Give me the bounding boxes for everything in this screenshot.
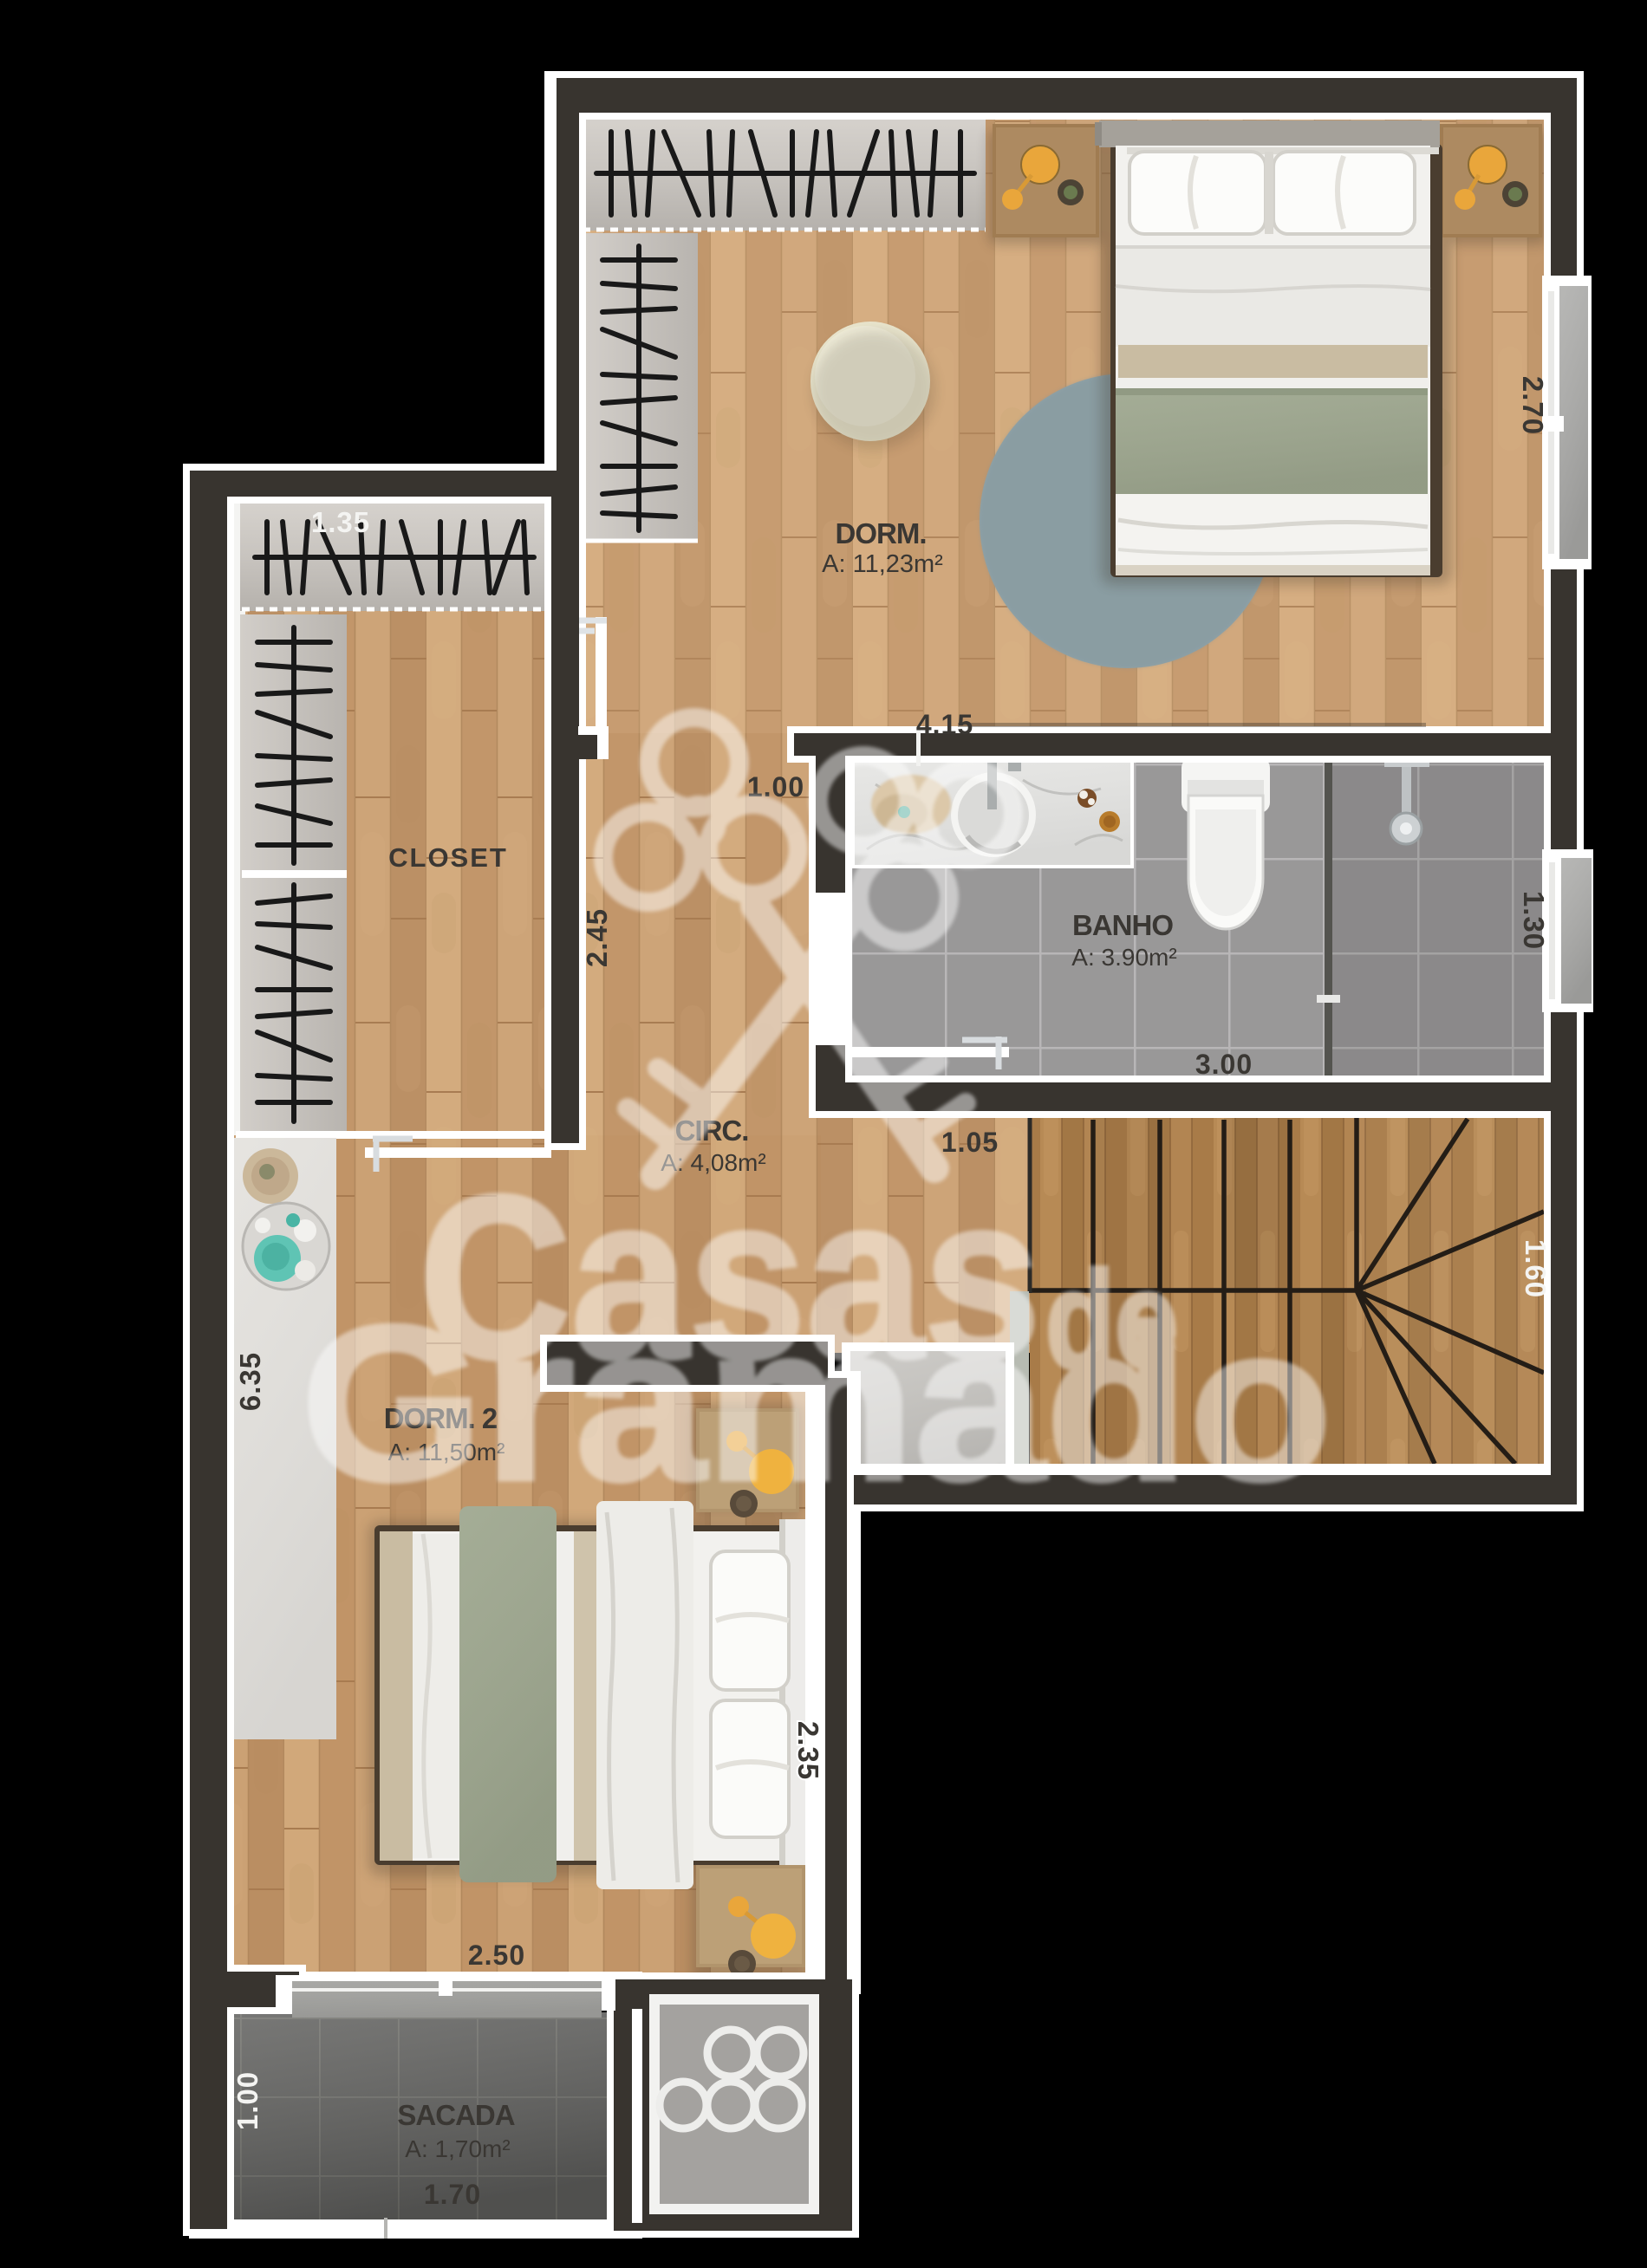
svg-text:6.35: 6.35 (234, 1352, 266, 1411)
svg-text:CLOSET: CLOSET (388, 842, 508, 873)
svg-text:1.60: 1.60 (1520, 1239, 1552, 1298)
svg-text:1.00: 1.00 (231, 2071, 264, 2130)
svg-text:Gramado: Gramado (301, 1280, 1332, 1527)
svg-text:2.70: 2.70 (1517, 376, 1549, 435)
svg-text:3.00: 3.00 (1195, 1049, 1253, 1080)
svg-text:2.45: 2.45 (581, 908, 613, 967)
svg-text:2.35: 2.35 (792, 1721, 824, 1780)
svg-text:BANHO: BANHO (1072, 909, 1173, 941)
svg-text:SACADA: SACADA (397, 2099, 514, 2131)
svg-text:2.50: 2.50 (468, 1940, 525, 1971)
svg-text:A: 11,23m²: A: 11,23m² (822, 550, 943, 578)
svg-text:1.70: 1.70 (424, 2179, 481, 2210)
svg-text:DORM.: DORM. (836, 517, 927, 549)
svg-text:A: 3.90m²: A: 3.90m² (1071, 944, 1176, 971)
svg-text:1.35: 1.35 (311, 506, 370, 538)
svg-text:A: 1,70m²: A: 1,70m² (405, 2135, 510, 2162)
svg-text:1.30: 1.30 (1518, 891, 1550, 950)
svg-text:4.15: 4.15 (916, 709, 973, 740)
